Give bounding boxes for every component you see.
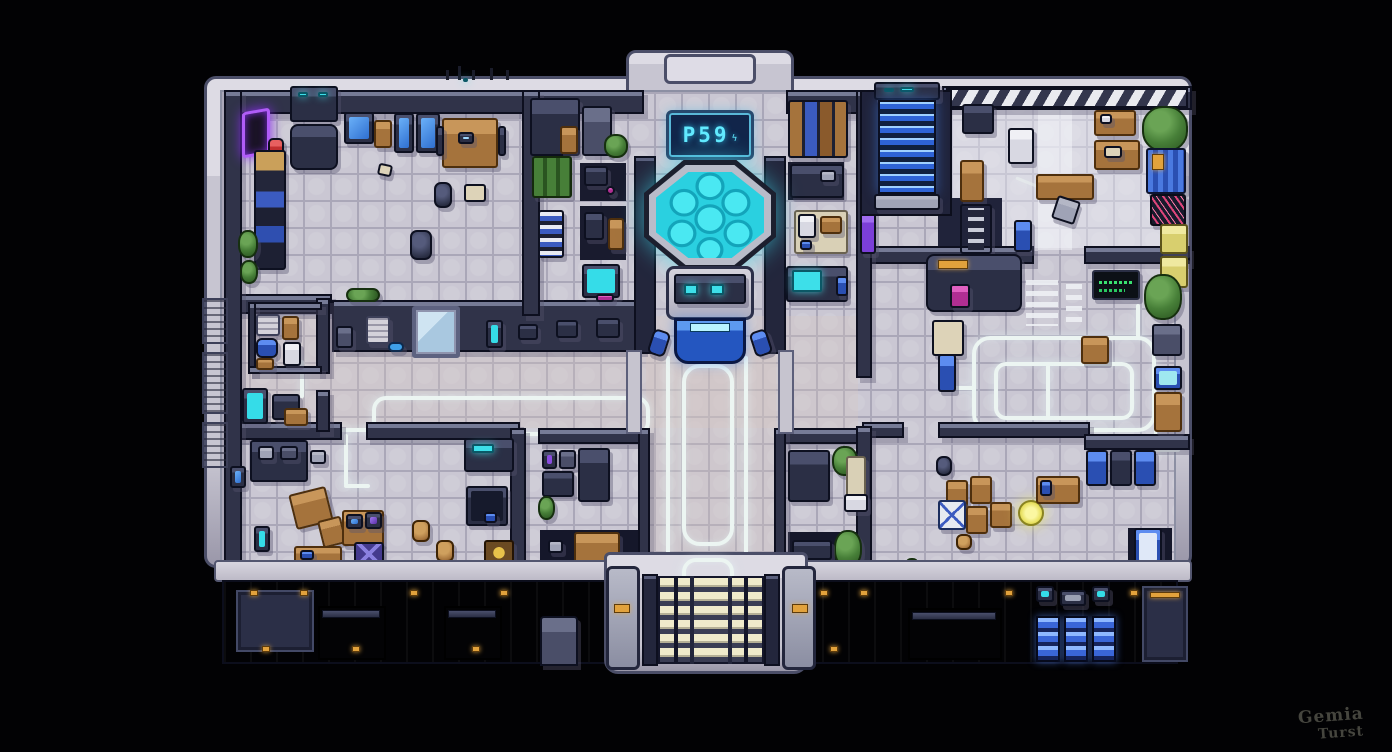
monitor-panel xyxy=(394,113,414,153)
entrance-pillar-right xyxy=(782,566,816,670)
vending-machine xyxy=(486,320,503,348)
cafeteria-table xyxy=(990,502,1012,528)
cabinet-door xyxy=(336,326,353,348)
glow-elbow-down xyxy=(344,434,348,486)
ladder xyxy=(960,204,992,254)
kiosk-stand xyxy=(932,320,964,356)
glowing-blue-locker xyxy=(1036,616,1060,662)
precinct-sign-text: P59 xyxy=(683,123,730,147)
sink xyxy=(388,342,404,352)
indoor-tree xyxy=(1142,106,1188,152)
printer-desk xyxy=(790,164,844,198)
fascia-light-icon xyxy=(1130,590,1138,596)
striped-drawer-unit xyxy=(538,210,564,258)
potted-plant xyxy=(238,230,258,258)
fascia-light-icon xyxy=(410,590,418,596)
cyan-screen-console xyxy=(582,264,620,298)
wooden-crates xyxy=(960,160,984,202)
entrance-pillar-left xyxy=(606,566,640,670)
dark-crates xyxy=(962,104,994,134)
counter-item xyxy=(518,324,538,340)
fascia-light-icon xyxy=(472,646,480,652)
office-chair xyxy=(410,230,432,260)
box-storage-shelf xyxy=(788,100,848,158)
fascia-light-icon xyxy=(250,590,258,596)
roof-antenna-icon xyxy=(506,70,509,80)
pipe xyxy=(448,610,496,618)
wooden-box xyxy=(820,216,842,234)
blue-item xyxy=(800,240,812,250)
glowing-blue-staircase xyxy=(878,100,936,194)
desk-monitor xyxy=(344,112,374,144)
cyan-honeycomb-skylight xyxy=(656,172,764,258)
precinct-sign-glyph: ϟ xyxy=(732,134,738,144)
open-book xyxy=(1104,146,1122,158)
cafeteria-table xyxy=(966,506,988,534)
blue-locker xyxy=(1086,450,1108,486)
fascia-light-icon xyxy=(262,646,270,652)
pillar-light-icon xyxy=(792,604,808,613)
roof-antenna-icon xyxy=(446,70,449,80)
roof-antenna-icon xyxy=(490,68,493,80)
crosswalk-slats xyxy=(1026,280,1058,326)
blue-console xyxy=(1154,366,1182,390)
desk-light-slot xyxy=(690,323,730,332)
kiosk-window-icon xyxy=(684,284,698,295)
desk-chair xyxy=(436,126,444,156)
fascia-light-icon xyxy=(1005,590,1013,596)
glow-stub-north-east xyxy=(1136,304,1140,338)
gray-monitor xyxy=(258,446,274,460)
small-cabinet xyxy=(542,471,574,497)
corridor-pillar-right xyxy=(778,350,794,434)
magenta-strip xyxy=(596,294,614,302)
cafeteria-table xyxy=(970,476,992,504)
wooden-stool xyxy=(412,520,430,542)
wooden-stool xyxy=(436,540,454,562)
wooden-shelf xyxy=(560,126,578,154)
glow-loop-east-inner xyxy=(994,362,1134,420)
basement-screen-gray xyxy=(1060,590,1086,606)
counter-item xyxy=(556,320,578,338)
wall-room-bcr-top xyxy=(784,428,866,444)
wooden-cabinet xyxy=(374,120,392,148)
roof-antenna-icon xyxy=(458,66,461,80)
wooden-shelf xyxy=(608,218,624,250)
basement-screen-cyan xyxy=(1092,586,1110,602)
precinct-sign: P59 ϟ xyxy=(666,110,754,160)
wooden-boxes xyxy=(284,408,308,426)
console-readout-icon xyxy=(900,87,914,92)
white-panel xyxy=(366,316,390,344)
laptop xyxy=(458,132,474,144)
blue-bin xyxy=(256,338,278,358)
office-chair xyxy=(434,182,452,208)
fascia-light-icon xyxy=(500,590,508,596)
blue-box-small xyxy=(484,512,497,523)
basement-screen-cyan xyxy=(1036,586,1054,602)
storage-shelf-column xyxy=(254,150,286,270)
fascia-light-icon xyxy=(352,646,360,652)
potted-plant xyxy=(538,496,555,520)
wall-top-room-a xyxy=(226,90,524,114)
roof-light-icon xyxy=(463,78,468,82)
wooden-table xyxy=(1154,392,1182,432)
closet-wall-top xyxy=(248,302,322,310)
pillar-light-icon xyxy=(614,604,630,613)
fascia-light-icon xyxy=(830,646,838,652)
gray-box xyxy=(310,450,326,464)
fascia-light-icon xyxy=(820,590,828,596)
cyan-wall-screen xyxy=(254,526,270,552)
roof-antenna-icon xyxy=(472,70,475,80)
blue-box xyxy=(836,276,848,296)
crosswalk-slats xyxy=(1066,284,1082,326)
step-rail xyxy=(728,576,732,664)
wooden-stool xyxy=(956,534,972,550)
gold-trim-line xyxy=(1150,592,1180,598)
blue-locker xyxy=(1134,450,1156,486)
entrance-steps-main xyxy=(676,576,746,664)
cyan-vending-machine xyxy=(242,388,268,424)
sofa xyxy=(290,124,338,170)
console-readout-icon xyxy=(884,88,894,92)
console-light-icon xyxy=(298,92,308,97)
fascia-panel xyxy=(236,590,314,652)
potted-plant xyxy=(604,134,628,158)
open-book xyxy=(377,163,393,178)
glow-path-center-left xyxy=(666,356,670,562)
tall-lockers xyxy=(578,448,610,502)
indoor-tree xyxy=(1144,274,1182,320)
planter-garden xyxy=(532,156,572,198)
purple-screen-locker xyxy=(542,450,557,469)
white-machine xyxy=(798,214,816,238)
wall-cafeteria-top-b xyxy=(938,422,1090,438)
glow-loop-divider xyxy=(1046,362,1050,420)
desk-chair xyxy=(498,126,506,156)
white-cabinet xyxy=(844,494,868,512)
storage-box xyxy=(464,184,486,202)
pipe xyxy=(912,612,996,620)
kiosk-window-icon xyxy=(710,284,724,295)
pink-item xyxy=(606,186,615,195)
wall-monitor xyxy=(230,466,246,488)
glow-loop-central xyxy=(682,364,734,546)
wall-lockers-east xyxy=(1084,434,1190,450)
corridor-pillar-left xyxy=(626,350,642,434)
framed-picture xyxy=(559,450,576,469)
skylight-assembly xyxy=(644,160,776,270)
closet-wall-left xyxy=(248,302,256,374)
container-label xyxy=(1152,154,1164,170)
chair xyxy=(936,456,952,476)
counter-plant xyxy=(346,288,380,302)
blue-door xyxy=(938,354,956,392)
artist-signature-line2: Turst xyxy=(1318,724,1365,741)
fascia-light-icon xyxy=(860,590,868,596)
small-console xyxy=(584,166,608,186)
wooden-box xyxy=(256,358,274,370)
small-console xyxy=(584,212,604,240)
fascia-light-icon xyxy=(300,590,308,596)
pipe xyxy=(322,610,380,618)
mini-fridge xyxy=(283,342,301,366)
cyan-monitor xyxy=(792,270,822,292)
exterior-vent xyxy=(202,298,228,344)
wall-console xyxy=(290,86,338,122)
paper-shelf xyxy=(256,314,280,336)
exterior-vent xyxy=(202,352,228,414)
glow-elbow-foot xyxy=(344,484,370,488)
exterior-vent xyxy=(202,422,228,468)
printer xyxy=(820,170,836,182)
magenta-terminal xyxy=(950,284,970,308)
yellow-vending-machine xyxy=(1160,224,1188,254)
gold-vent xyxy=(938,260,968,269)
dark-locker xyxy=(1110,450,1132,486)
gray-lockers xyxy=(788,450,830,502)
gray-monitor xyxy=(280,446,298,460)
stairs-landing xyxy=(874,194,940,210)
entrance-trim-right xyxy=(764,574,780,666)
entrance-steps-side xyxy=(658,576,676,664)
console-light-icon xyxy=(318,92,328,97)
white-cabinet xyxy=(1008,128,1034,164)
desk-monitor xyxy=(346,514,363,529)
gray-box xyxy=(548,540,563,553)
basement-door xyxy=(540,616,578,666)
entrance-trim-left xyxy=(642,574,658,666)
white-table-blue-x xyxy=(938,500,966,530)
step-rail xyxy=(690,576,694,664)
potted-plant xyxy=(240,260,258,284)
interior-window xyxy=(412,306,460,358)
pixel-art-station-map: P59 ϟ xyxy=(0,0,1392,752)
glow-path-center-right xyxy=(744,356,748,562)
entrance-steps-side xyxy=(746,576,764,664)
gray-shelf xyxy=(1152,324,1182,356)
wooden-cabinet xyxy=(282,316,299,340)
wall-closet-east-b xyxy=(316,390,330,432)
glowing-blue-locker xyxy=(1092,616,1116,662)
graffiti-container xyxy=(1150,194,1186,226)
glowing-blue-locker xyxy=(1064,616,1088,662)
blue-chair xyxy=(1040,480,1052,496)
cyan-terminal-slot xyxy=(472,444,494,453)
wooden-table xyxy=(1081,336,1109,364)
desk-monitor-purple xyxy=(365,512,382,529)
honeycomb-pattern-icon xyxy=(656,172,764,258)
top-tower-cap xyxy=(664,54,756,84)
blue-locker xyxy=(1014,220,1032,252)
matrix-terminal-screen xyxy=(1092,270,1140,300)
blue-screen xyxy=(300,550,314,560)
paper-sheet xyxy=(1100,114,1112,124)
counter-item xyxy=(596,318,620,338)
